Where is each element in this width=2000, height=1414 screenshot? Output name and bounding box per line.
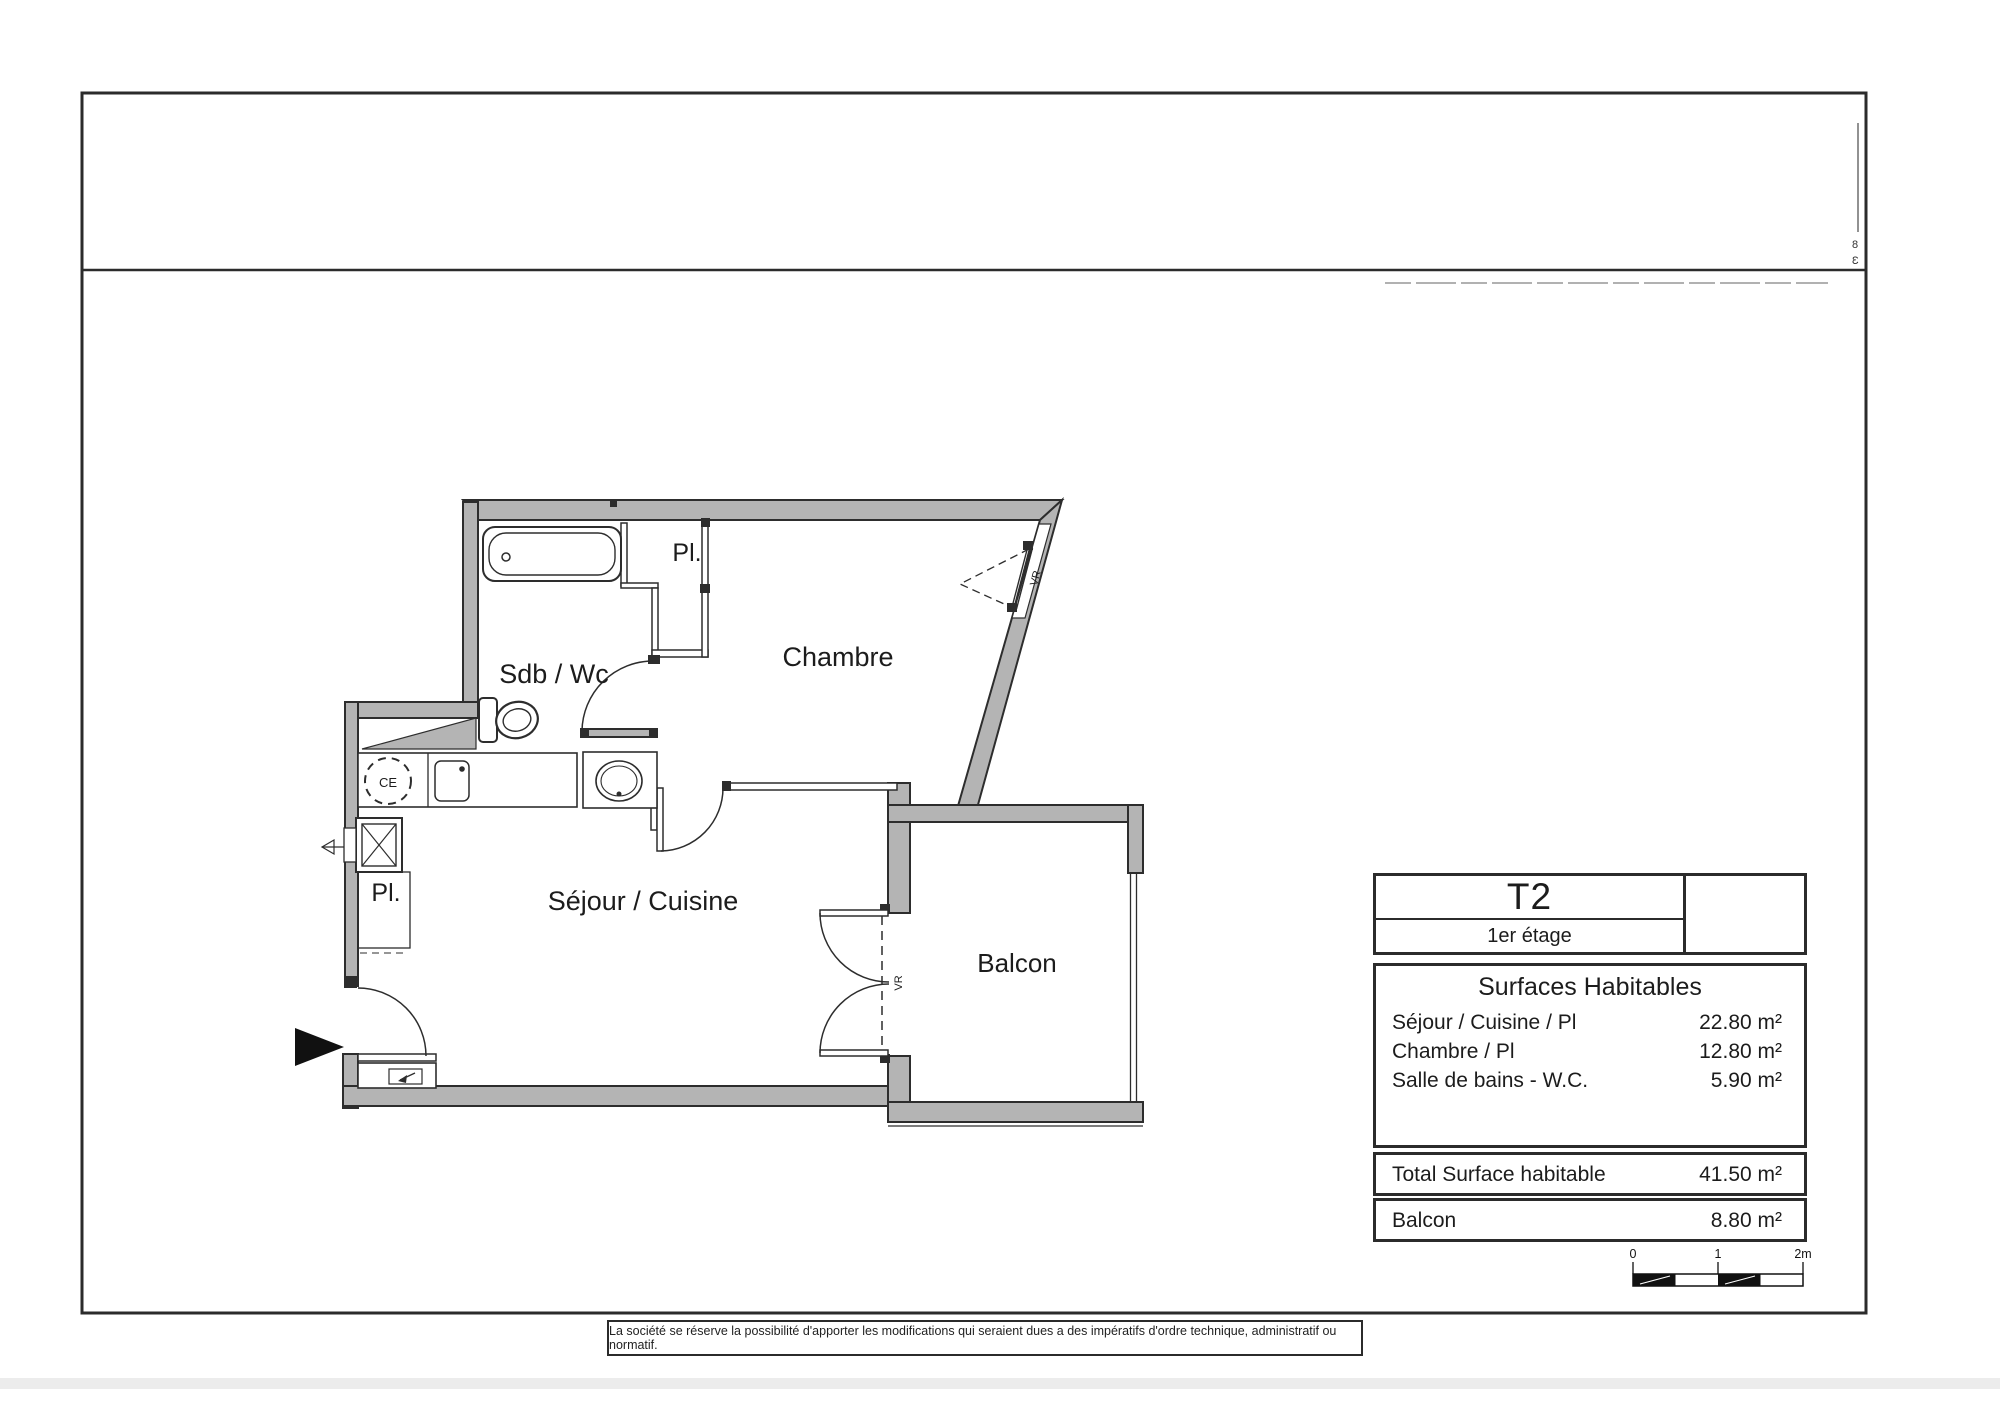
room-label-balcon: Balcon	[977, 948, 1057, 978]
scale-tick-2m: 2m	[1794, 1247, 1811, 1261]
room-label-chambre: Chambre	[782, 642, 893, 672]
scale-tick-1: 1	[1715, 1247, 1722, 1261]
margin-note-top: 8	[1852, 239, 1858, 251]
table-row: Chambre / Pl 12.80 m²	[1376, 1037, 1804, 1066]
total-value: 41.50 m²	[1699, 1160, 1782, 1189]
room-label-placard-bottom: Pl.	[371, 879, 400, 907]
washbasin	[583, 752, 657, 808]
table-row: Balcon 8.80 m²	[1376, 1206, 1804, 1235]
technical-shaft	[322, 818, 402, 872]
row-label: Chambre / Pl	[1392, 1037, 1515, 1066]
total-surface-box: Total Surface habitable 41.50 m²	[1373, 1152, 1807, 1196]
room-label-placard-top: Pl.	[672, 539, 701, 567]
title-block-empty-cell	[1686, 876, 1804, 952]
toilet	[479, 697, 542, 743]
margin-note-bottom: Ɛ	[1852, 255, 1859, 267]
balcony-surface-box: Balcon 8.80 m²	[1373, 1198, 1807, 1242]
scale-tick-0: 0	[1630, 1247, 1637, 1261]
table-row: Salle de bains - W.C. 5.90 m²	[1376, 1066, 1804, 1095]
balcony-railing	[888, 873, 1143, 1126]
balcony-value: 8.80 m²	[1711, 1206, 1782, 1235]
surfaces-title: Surfaces Habitables	[1376, 966, 1804, 1002]
water-heater-label: CE	[379, 775, 397, 790]
window-shutter-label: VR	[1028, 569, 1044, 587]
unit-floor: 1er étage	[1376, 920, 1683, 952]
disclaimer-text: La société se réserve la possibilité d'a…	[609, 1324, 1361, 1352]
row-value: 12.80 m²	[1699, 1037, 1782, 1066]
disclaimer-note: La société se réserve la possibilité d'a…	[607, 1320, 1363, 1356]
scale-bar: 0 1 2m	[1630, 1247, 1812, 1286]
chambre-window: VR	[960, 524, 1051, 618]
total-label: Total Surface habitable	[1392, 1160, 1606, 1189]
table-row: Séjour / Cuisine / Pl 22.80 m²	[1376, 1008, 1804, 1037]
entrance-door-leaf	[358, 1054, 436, 1061]
page-edge-strip	[0, 1378, 2000, 1389]
entrance-panel	[358, 1063, 436, 1088]
balcony-label: Balcon	[1392, 1206, 1456, 1235]
room-label-sejour: Séjour / Cuisine	[548, 886, 739, 916]
room-label-sdb: Sdb / Wc	[499, 659, 609, 689]
floorplan-sheet: 8 Ɛ	[0, 0, 2000, 1414]
entrance-arrow-icon	[295, 1028, 344, 1066]
table-row: Total Surface habitable 41.50 m²	[1376, 1160, 1804, 1189]
surfaces-table: Surfaces Habitables Séjour / Cuisine / P…	[1373, 963, 1807, 1148]
row-value: 5.90 m²	[1711, 1066, 1782, 1095]
row-label: Salle de bains - W.C.	[1392, 1066, 1588, 1095]
bathtub	[483, 527, 621, 581]
title-block-left: T2 1er étage	[1376, 876, 1686, 952]
row-value: 22.80 m²	[1699, 1008, 1782, 1037]
balcony-door-shutter-label: VR	[893, 975, 905, 990]
interior-walls	[621, 520, 897, 830]
row-label: Séjour / Cuisine / Pl	[1392, 1008, 1576, 1037]
surfaces-rows: Séjour / Cuisine / Pl 22.80 m² Chambre /…	[1376, 1008, 1804, 1095]
title-block: T2 1er étage	[1373, 873, 1807, 955]
unit-type: T2	[1376, 876, 1683, 920]
doors	[358, 661, 889, 1061]
